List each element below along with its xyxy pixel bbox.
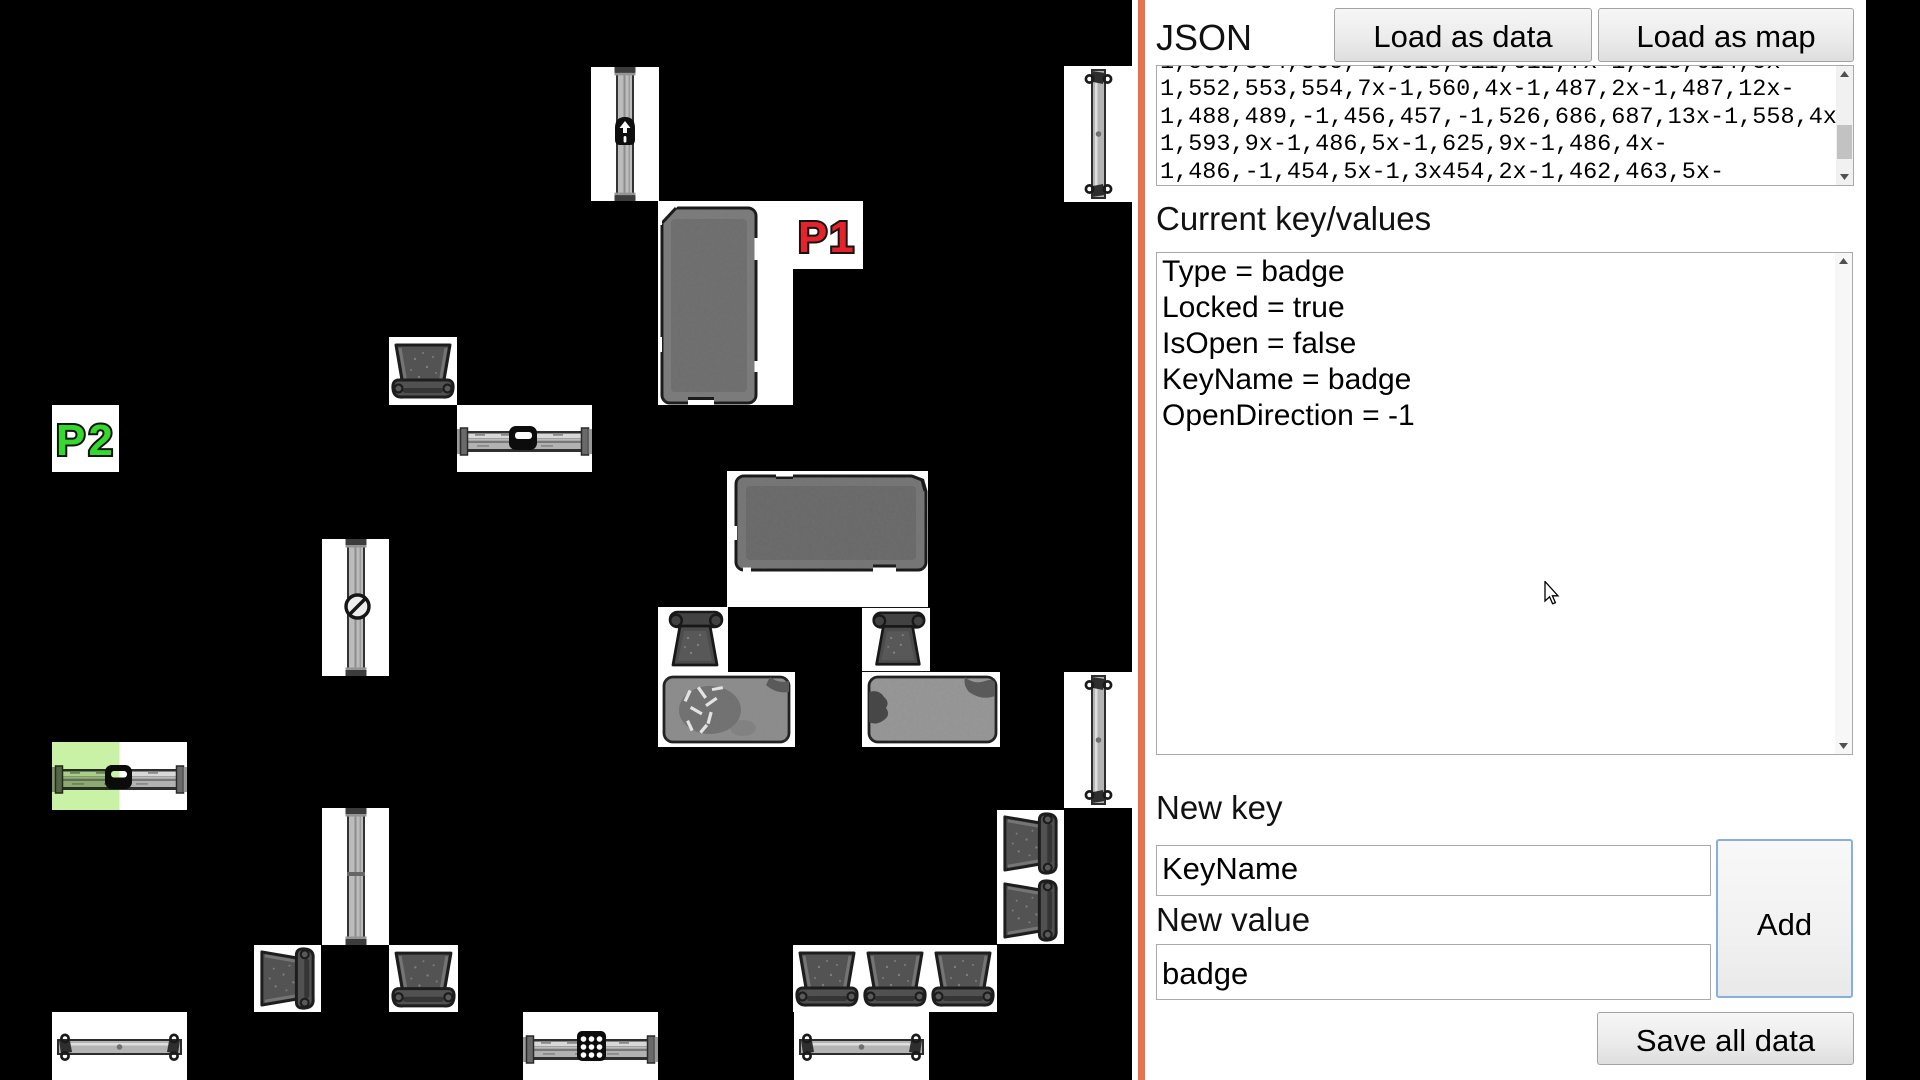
svg-text:P1: P1	[798, 213, 856, 262]
svg-text:P2: P2	[56, 416, 116, 465]
